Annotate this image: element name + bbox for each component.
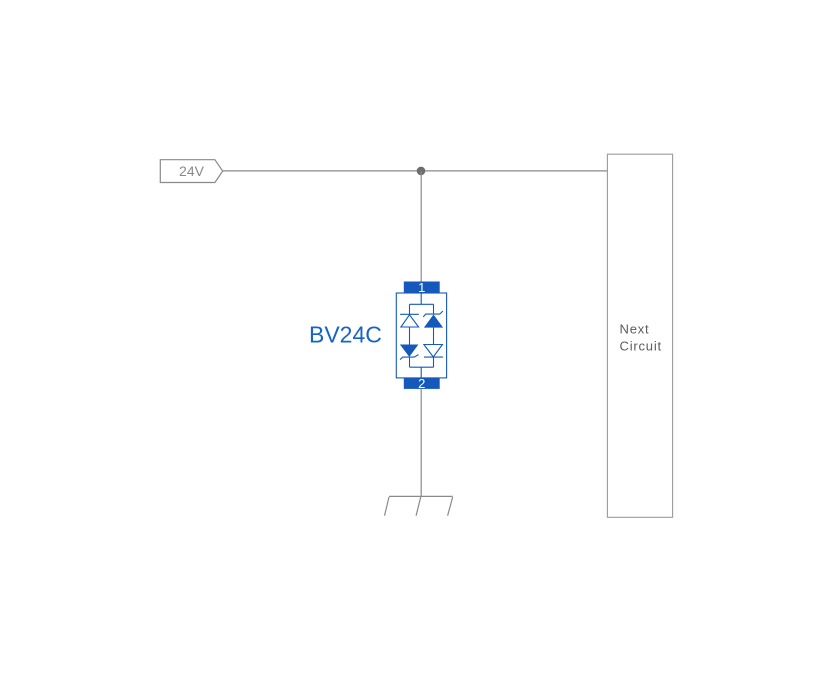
svg-text:Circuit: Circuit bbox=[620, 338, 662, 353]
svg-text:BV24C: BV24C bbox=[309, 322, 382, 348]
svg-text:2: 2 bbox=[418, 376, 425, 391]
svg-text:24V: 24V bbox=[179, 163, 205, 179]
svg-text:Next: Next bbox=[620, 321, 650, 336]
